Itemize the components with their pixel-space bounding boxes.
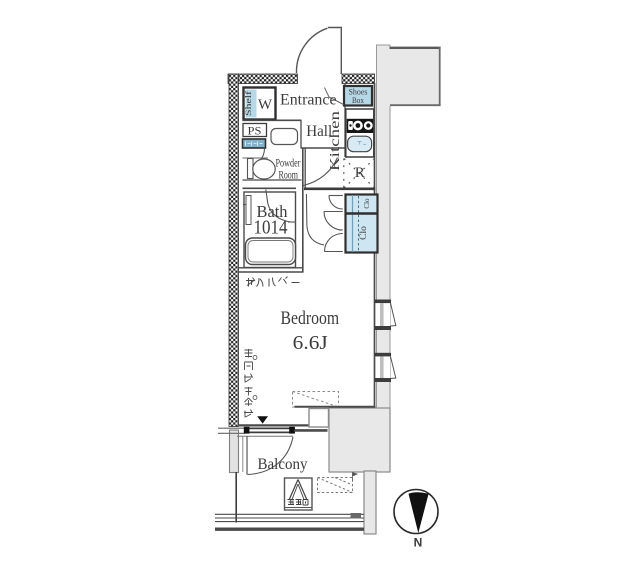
svg-text:Bedroom: Bedroom xyxy=(281,308,340,329)
svg-text:Clo: Clo xyxy=(359,226,369,240)
svg-text:Balcony: Balcony xyxy=(258,456,308,473)
svg-text:Shelf: Shelf xyxy=(244,91,253,116)
svg-text:W: W xyxy=(258,97,273,113)
svg-text:Box: Box xyxy=(352,96,364,105)
svg-text:1014: 1014 xyxy=(254,217,288,239)
svg-text:R: R xyxy=(355,165,365,181)
svg-text:N: N xyxy=(414,536,423,550)
svg-text:Room: Room xyxy=(279,170,299,182)
svg-text:Hall: Hall xyxy=(306,123,332,140)
svg-text:Clo: Clo xyxy=(363,198,371,209)
svg-text:6.6J: 6.6J xyxy=(293,332,328,354)
svg-text:Powder: Powder xyxy=(276,158,301,170)
svg-text:Entrance: Entrance xyxy=(280,92,337,109)
svg-text:PS: PS xyxy=(248,124,262,138)
